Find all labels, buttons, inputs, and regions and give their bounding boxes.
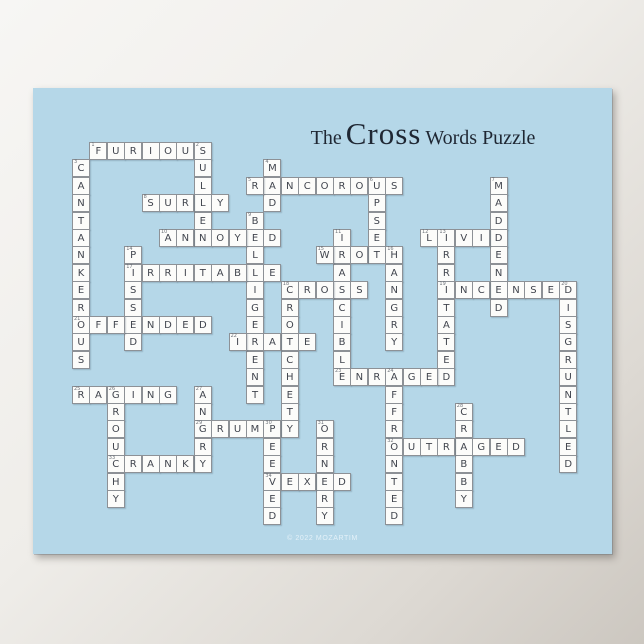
crossword-cell: E bbox=[385, 490, 403, 508]
crossword-cell: N bbox=[246, 368, 264, 386]
crossword-cell: R bbox=[385, 316, 403, 334]
crossword-cell: 6U bbox=[368, 177, 386, 195]
crossword-cell: 30P bbox=[263, 420, 281, 438]
crossword-cell: E bbox=[420, 368, 438, 386]
crossword-cell: S bbox=[333, 281, 351, 299]
crossword-cell: R bbox=[211, 420, 229, 438]
crossword-cell: N bbox=[142, 386, 160, 404]
crossword-cell: Y bbox=[316, 507, 334, 525]
crossword-cell: U bbox=[403, 438, 421, 456]
cell-letter: N bbox=[195, 232, 211, 246]
crossword-cell: 9B bbox=[246, 212, 264, 230]
crossword-cell: Y bbox=[281, 420, 299, 438]
cell-letter: L bbox=[560, 423, 576, 437]
crossword-cell: 2S bbox=[194, 142, 212, 160]
crossword-cell: T bbox=[246, 386, 264, 404]
cell-letter: B bbox=[247, 215, 263, 229]
crossword-cell: T bbox=[72, 212, 90, 230]
cell-letter: Y bbox=[456, 493, 472, 507]
cell-letter: E bbox=[264, 267, 280, 281]
crossword-cell: U bbox=[107, 142, 125, 160]
cell-letter: N bbox=[560, 389, 576, 403]
crossword-cell: R bbox=[142, 264, 160, 282]
crossword-cell: R bbox=[437, 438, 455, 456]
cell-letter: R bbox=[247, 180, 263, 194]
cell-letter: I bbox=[125, 389, 141, 403]
cell-letter: Y bbox=[386, 336, 402, 350]
cell-letter: E bbox=[317, 476, 333, 490]
cell-letter: A bbox=[264, 336, 280, 350]
cell-letter: R bbox=[299, 284, 315, 298]
crossword-cell: 11I bbox=[333, 229, 351, 247]
crossword-cell: D bbox=[124, 333, 142, 351]
cell-letter: N bbox=[143, 389, 159, 403]
cell-letter: G bbox=[160, 389, 176, 403]
crossword-cell: Y bbox=[455, 490, 473, 508]
cell-letter: M bbox=[247, 423, 263, 437]
cell-letter: L bbox=[195, 197, 211, 211]
crossword-cell: S bbox=[559, 316, 577, 334]
cell-letter: D bbox=[491, 215, 507, 229]
crossword-cell: 34V bbox=[263, 473, 281, 491]
crossword-cell: M bbox=[246, 420, 264, 438]
crossword-cell: A bbox=[455, 438, 473, 456]
cell-letter: D bbox=[438, 371, 454, 385]
cell-letter: N bbox=[177, 232, 193, 246]
cell-letter: A bbox=[491, 197, 507, 211]
cell-letter: C bbox=[108, 458, 124, 472]
crossword-cell: E bbox=[298, 333, 316, 351]
cell-letter: V bbox=[264, 476, 280, 490]
cell-letter: N bbox=[491, 267, 507, 281]
cell-letter: C bbox=[299, 180, 315, 194]
crossword-cell: U bbox=[194, 159, 212, 177]
cell-letter: G bbox=[108, 389, 124, 403]
cell-letter: U bbox=[108, 441, 124, 455]
crossword-cell: P bbox=[368, 194, 386, 212]
cell-letter: K bbox=[73, 267, 89, 281]
crossword-cell: 27A bbox=[194, 386, 212, 404]
crossword-cell: D bbox=[490, 299, 508, 317]
cell-letter: O bbox=[160, 145, 176, 159]
cell-letter: F bbox=[386, 389, 402, 403]
cell-letter: N bbox=[73, 249, 89, 263]
cell-letter: T bbox=[438, 336, 454, 350]
cell-letter: L bbox=[195, 180, 211, 194]
crossword-cell: R bbox=[455, 420, 473, 438]
poster: The Cross Words Puzzle 1FURIOU2SULLEN3CA… bbox=[33, 88, 612, 554]
crossword-cell: R bbox=[437, 264, 455, 282]
crossword-cell: 13I bbox=[437, 229, 455, 247]
crossword-cell: E bbox=[490, 438, 508, 456]
cell-letter: R bbox=[212, 423, 228, 437]
crossword-cell: 5R bbox=[246, 177, 264, 195]
cell-letter: R bbox=[334, 249, 350, 263]
crossword-cell: N bbox=[559, 386, 577, 404]
crossword-cell: 32O bbox=[385, 438, 403, 456]
cell-letter: R bbox=[73, 302, 89, 316]
cell-letter: R bbox=[195, 441, 211, 455]
cell-letter: N bbox=[282, 180, 298, 194]
cell-letter: H bbox=[108, 476, 124, 490]
cell-letter: R bbox=[282, 302, 298, 316]
cell-letter: M bbox=[491, 180, 507, 194]
cell-letter: Y bbox=[212, 197, 228, 211]
cell-letter: U bbox=[369, 180, 385, 194]
cell-letter: U bbox=[108, 145, 124, 159]
crossword-cell: E bbox=[72, 281, 90, 299]
crossword-cell: 4M bbox=[263, 159, 281, 177]
cell-letter: S bbox=[73, 354, 89, 368]
cell-letter: R bbox=[73, 389, 89, 403]
crossword-cell: R bbox=[298, 281, 316, 299]
cell-letter: O bbox=[351, 249, 367, 263]
crossword-cell: R bbox=[333, 177, 351, 195]
crossword-cell: E bbox=[263, 438, 281, 456]
cell-letter: G bbox=[473, 441, 489, 455]
crossword-cell: B bbox=[455, 473, 473, 491]
crossword-cell: R bbox=[437, 246, 455, 264]
crossword-cell: S bbox=[124, 299, 142, 317]
cell-letter: A bbox=[456, 441, 472, 455]
crossword-cell: O bbox=[107, 420, 125, 438]
crossword-cell: F bbox=[385, 386, 403, 404]
crossword-cell: R bbox=[72, 299, 90, 317]
cell-letter: A bbox=[386, 267, 402, 281]
cell-letter: B bbox=[230, 267, 246, 281]
crossword-cell: A bbox=[89, 386, 107, 404]
cell-letter: E bbox=[491, 249, 507, 263]
crossword-cell: R bbox=[124, 142, 142, 160]
cell-letter: E bbox=[282, 476, 298, 490]
crossword-cell: Y bbox=[211, 194, 229, 212]
cell-letter: A bbox=[160, 232, 176, 246]
cell-letter: E bbox=[369, 232, 385, 246]
cell-letter: K bbox=[177, 458, 193, 472]
crossword-cell: 10A bbox=[159, 229, 177, 247]
footer-credit: © 2022 MOZARTIM bbox=[33, 535, 612, 542]
crossword-cell: A bbox=[211, 264, 229, 282]
cell-letter: R bbox=[386, 319, 402, 333]
cell-letter: D bbox=[195, 319, 211, 333]
crossword-cell: D bbox=[194, 316, 212, 334]
cell-letter: D bbox=[491, 232, 507, 246]
crossword-cell: 7M bbox=[490, 177, 508, 195]
cell-letter: R bbox=[317, 441, 333, 455]
cell-letter: O bbox=[317, 423, 333, 437]
cell-letter: N bbox=[195, 406, 211, 420]
crossword-cell: E bbox=[263, 455, 281, 473]
crossword-cell: D bbox=[490, 229, 508, 247]
cell-letter: R bbox=[143, 267, 159, 281]
crossword-cell: 31O bbox=[316, 420, 334, 438]
poster-title: The Cross Words Puzzle bbox=[248, 116, 598, 152]
crossword-cell: 8S bbox=[142, 194, 160, 212]
cell-letter: I bbox=[334, 232, 350, 246]
cell-letter: N bbox=[351, 371, 367, 385]
cell-letter: E bbox=[334, 371, 350, 385]
cell-letter: B bbox=[456, 476, 472, 490]
cell-letter: I bbox=[560, 302, 576, 316]
cell-letter: O bbox=[73, 319, 89, 333]
cell-letter: O bbox=[108, 423, 124, 437]
cell-letter: T bbox=[73, 215, 89, 229]
cell-letter: R bbox=[438, 249, 454, 263]
cell-letter: I bbox=[125, 267, 141, 281]
cell-letter: F bbox=[108, 319, 124, 333]
crossword-cell: R bbox=[281, 299, 299, 317]
crossword-cell: R bbox=[124, 455, 142, 473]
cell-letter: E bbox=[491, 441, 507, 455]
cell-letter: T bbox=[421, 441, 437, 455]
title-suffix: Words Puzzle bbox=[425, 127, 535, 149]
cell-letter: U bbox=[195, 162, 211, 176]
crossword-cell: Y bbox=[194, 455, 212, 473]
cell-letter: I bbox=[438, 284, 454, 298]
crossword-cell: G bbox=[559, 333, 577, 351]
crossword-cell: T bbox=[368, 246, 386, 264]
crossword-cell: A bbox=[490, 194, 508, 212]
crossword-cell: C bbox=[281, 351, 299, 369]
cell-letter: E bbox=[264, 458, 280, 472]
cell-letter: L bbox=[247, 249, 263, 263]
cell-letter: R bbox=[177, 197, 193, 211]
cell-letter: F bbox=[90, 319, 106, 333]
cell-letter: E bbox=[543, 284, 559, 298]
crossword-cell: E bbox=[263, 264, 281, 282]
crossword-cell: G bbox=[472, 438, 490, 456]
cell-letter: U bbox=[404, 441, 420, 455]
cell-letter: C bbox=[282, 284, 298, 298]
crossword-cell: N bbox=[507, 281, 525, 299]
cell-letter: C bbox=[282, 354, 298, 368]
crossword-cell: 28C bbox=[455, 403, 473, 421]
cell-letter: C bbox=[73, 162, 89, 176]
cell-letter: G bbox=[247, 302, 263, 316]
crossword-cell: X bbox=[298, 473, 316, 491]
crossword-cell: E bbox=[124, 316, 142, 334]
crossword-cell: U bbox=[176, 142, 194, 160]
cell-letter: R bbox=[369, 371, 385, 385]
cell-letter: X bbox=[299, 476, 315, 490]
crossword-cell: R bbox=[159, 264, 177, 282]
cell-letter: E bbox=[73, 284, 89, 298]
crossword-cell: R bbox=[107, 403, 125, 421]
crossword-cell: N bbox=[455, 281, 473, 299]
crossword-cell: B bbox=[229, 264, 247, 282]
cell-letter: E bbox=[125, 319, 141, 333]
cell-letter: R bbox=[334, 180, 350, 194]
cell-letter: O bbox=[386, 441, 402, 455]
cell-letter: R bbox=[125, 458, 141, 472]
crossword-cell: E bbox=[176, 316, 194, 334]
crossword-cell: E bbox=[368, 229, 386, 247]
crossword-cell: S bbox=[350, 281, 368, 299]
cell-letter: N bbox=[386, 458, 402, 472]
crossword-cell: E bbox=[542, 281, 560, 299]
crossword-cell: T bbox=[437, 333, 455, 351]
crossword-cell: 22I bbox=[229, 333, 247, 351]
crossword-cell: R bbox=[316, 438, 334, 456]
cell-letter: P bbox=[264, 423, 280, 437]
cell-letter: E bbox=[386, 493, 402, 507]
cell-letter: T bbox=[247, 389, 263, 403]
crossword-cell: I bbox=[333, 316, 351, 334]
crossword-cell: L bbox=[246, 264, 264, 282]
cell-letter: S bbox=[334, 284, 350, 298]
crossword-cell: D bbox=[490, 212, 508, 230]
cell-letter: O bbox=[351, 180, 367, 194]
crossword-cell: E bbox=[437, 351, 455, 369]
title-prefix: The bbox=[311, 127, 342, 149]
crossword-cell: N bbox=[142, 316, 160, 334]
crossword-cell: H bbox=[281, 368, 299, 386]
cell-letter: N bbox=[160, 458, 176, 472]
crossword-cell: F bbox=[107, 316, 125, 334]
crossword-cell: 1F bbox=[89, 142, 107, 160]
crossword-cell: V bbox=[455, 229, 473, 247]
cell-letter: N bbox=[386, 284, 402, 298]
crossword-cell: 24A bbox=[385, 368, 403, 386]
cell-letter: I bbox=[177, 267, 193, 281]
cell-letter: R bbox=[438, 267, 454, 281]
crossword-cell: U bbox=[229, 420, 247, 438]
crossword-cell: 16H bbox=[385, 246, 403, 264]
crossword-cell: T bbox=[281, 403, 299, 421]
cell-letter: A bbox=[73, 232, 89, 246]
cell-letter: I bbox=[438, 232, 454, 246]
crossword-cell: E bbox=[194, 212, 212, 230]
cell-letter: E bbox=[491, 284, 507, 298]
cell-letter: E bbox=[247, 354, 263, 368]
crossword-cell: U bbox=[159, 194, 177, 212]
crossword-cell: U bbox=[107, 438, 125, 456]
crossword-cell: T bbox=[420, 438, 438, 456]
crossword-cell: I bbox=[559, 299, 577, 317]
cell-letter: T bbox=[369, 249, 385, 263]
cell-letter: N bbox=[143, 319, 159, 333]
cell-letter: B bbox=[456, 458, 472, 472]
cell-letter: O bbox=[212, 232, 228, 246]
crossword-cell: A bbox=[263, 177, 281, 195]
cell-letter: T bbox=[560, 406, 576, 420]
crossword-cell: E bbox=[281, 386, 299, 404]
crossword-cell: A bbox=[437, 316, 455, 334]
cell-letter: L bbox=[421, 232, 437, 246]
crossword-cell: 20D bbox=[559, 281, 577, 299]
crossword-cell: C bbox=[333, 299, 351, 317]
cell-letter: N bbox=[456, 284, 472, 298]
crossword-cell: D bbox=[507, 438, 525, 456]
crossword-cell: R bbox=[194, 438, 212, 456]
crossword-cell: 17I bbox=[124, 264, 142, 282]
crossword-cell: L bbox=[333, 351, 351, 369]
crossword-cell: T bbox=[559, 403, 577, 421]
crossword-cell: S bbox=[524, 281, 542, 299]
crossword-cell: D bbox=[263, 194, 281, 212]
crossword-cell: A bbox=[263, 333, 281, 351]
crossword-cell: 18C bbox=[281, 281, 299, 299]
crossword-cell: D bbox=[333, 473, 351, 491]
crossword-cell: O bbox=[159, 142, 177, 160]
cell-letter: D bbox=[264, 232, 280, 246]
cell-letter: U bbox=[73, 336, 89, 350]
cell-letter: U bbox=[230, 423, 246, 437]
cell-letter: U bbox=[160, 197, 176, 211]
crossword-cell: Y bbox=[107, 490, 125, 508]
crossword-cell: O bbox=[316, 281, 334, 299]
crossword-cell: D bbox=[159, 316, 177, 334]
cell-letter: R bbox=[386, 423, 402, 437]
crossword-cell: L bbox=[246, 246, 264, 264]
cell-letter: I bbox=[473, 232, 489, 246]
cell-letter: T bbox=[438, 302, 454, 316]
crossword-cell: I bbox=[472, 229, 490, 247]
crossword-cell: K bbox=[176, 455, 194, 473]
crossword-cell: N bbox=[159, 455, 177, 473]
crossword-cell: E bbox=[281, 473, 299, 491]
cell-letter: N bbox=[317, 458, 333, 472]
cell-letter: S bbox=[369, 215, 385, 229]
crossword-cell: 19I bbox=[437, 281, 455, 299]
crossword-cell: E bbox=[246, 316, 264, 334]
cell-letter: R bbox=[160, 267, 176, 281]
cell-letter: A bbox=[334, 267, 350, 281]
crossword-cell: N bbox=[194, 403, 212, 421]
cell-letter: E bbox=[247, 232, 263, 246]
crossword-cell: I bbox=[246, 281, 264, 299]
crossword-cell: 29G bbox=[194, 420, 212, 438]
crossword-cell: D bbox=[437, 368, 455, 386]
cell-letter: R bbox=[456, 423, 472, 437]
crossword-cell: F bbox=[89, 316, 107, 334]
crossword-cell: O bbox=[350, 177, 368, 195]
cell-letter: E bbox=[282, 389, 298, 403]
crossword-cell: O bbox=[281, 316, 299, 334]
crossword-cell: D bbox=[263, 507, 281, 525]
cell-letter: G bbox=[404, 371, 420, 385]
cell-letter: E bbox=[177, 319, 193, 333]
cell-letter: I bbox=[230, 336, 246, 350]
crossword-cell: R bbox=[559, 351, 577, 369]
cell-letter: R bbox=[247, 336, 263, 350]
cell-letter: R bbox=[438, 441, 454, 455]
crossword-cell: I bbox=[124, 386, 142, 404]
cell-letter: S bbox=[525, 284, 541, 298]
crossword-cell: B bbox=[455, 455, 473, 473]
crossword-cell: O bbox=[350, 246, 368, 264]
crossword-cell: A bbox=[142, 455, 160, 473]
crossword-cell: R bbox=[316, 490, 334, 508]
cell-letter: Y bbox=[108, 493, 124, 507]
crossword-cell: R bbox=[368, 368, 386, 386]
crossword-cell: H bbox=[107, 473, 125, 491]
cell-letter: Y bbox=[230, 232, 246, 246]
crossword-cell: E bbox=[490, 246, 508, 264]
crossword-cell: N bbox=[385, 281, 403, 299]
crossword-cell: E bbox=[263, 490, 281, 508]
crossword-cell: S bbox=[124, 281, 142, 299]
cell-letter: D bbox=[491, 302, 507, 316]
crossword-cell: 21O bbox=[72, 316, 90, 334]
cell-letter: W bbox=[317, 249, 333, 263]
crossword-cell: O bbox=[316, 177, 334, 195]
cell-letter: G bbox=[560, 336, 576, 350]
cell-letter: I bbox=[334, 319, 350, 333]
cell-letter: C bbox=[334, 302, 350, 316]
cell-letter: V bbox=[456, 232, 472, 246]
crossword-cell: A bbox=[333, 264, 351, 282]
